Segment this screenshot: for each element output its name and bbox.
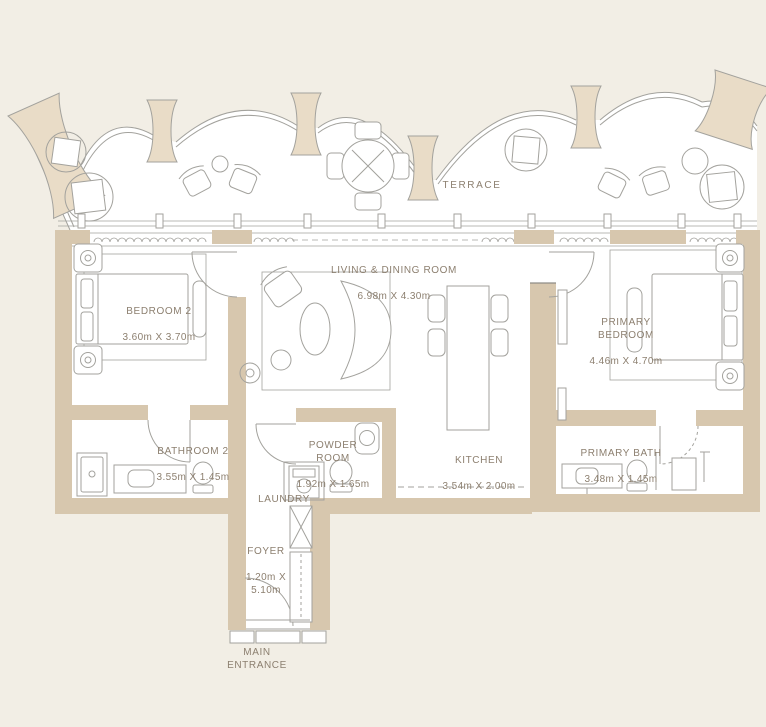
room-name: BEDROOM 2	[122, 305, 195, 318]
room-name: LAUNDRY	[258, 493, 310, 506]
foyer-closet-icon	[290, 506, 312, 622]
room-label-bathroom-2: BATHROOM 2 3.55m X 1.45m	[156, 432, 229, 497]
room-label-living-dining: LIVING & DINING ROOM 6.98m X 4.30m	[331, 251, 457, 316]
main-entrance-label: MAIN ENTRANCE	[227, 646, 287, 672]
room-name: PRIMARY BEDROOM	[589, 316, 662, 342]
room-dims: 3.55m X 1.45m	[156, 471, 229, 484]
room-name: BATHROOM 2	[156, 445, 229, 458]
room-label-primary-bath: PRIMARY BATH 3.48m X 1.45m	[580, 434, 661, 499]
room-name: POWDER ROOM	[296, 439, 369, 465]
room-label-kitchen: KITCHEN 3.54m X 2.00m	[442, 441, 515, 506]
room-dims: 6.98m X 4.30m	[331, 290, 457, 303]
room-name: KITCHEN	[442, 454, 515, 467]
room-dims: 4.46m X 4.70m	[589, 355, 662, 368]
room-label-primary-bedroom: PRIMARY BEDROOM 4.46m X 4.70m	[589, 303, 662, 381]
terrace-side-table-icon	[682, 148, 708, 174]
room-dims: 1.20m X 5.10m	[246, 571, 286, 597]
room-label-laundry: LAUNDRY	[258, 480, 310, 519]
room-name: FOYER	[246, 545, 286, 558]
room-label-foyer: FOYER 1.20m X 5.10m	[246, 532, 286, 610]
room-name: PRIMARY BATH	[580, 447, 661, 460]
terrace-side-table-icon	[212, 156, 228, 172]
room-name: LIVING & DINING ROOM	[331, 264, 457, 277]
room-dims: 3.54m X 2.00m	[442, 480, 515, 493]
room-dims: 3.60m X 3.70m	[122, 331, 195, 344]
room-label-bedroom-2: BEDROOM 2 3.60m X 3.70m	[122, 292, 195, 357]
floor-plan: TERRACE LIVING & DINING ROOM 6.98m X 4.3…	[0, 0, 766, 727]
room-dims: 3.48m X 1.45m	[580, 473, 661, 486]
terrace-label: TERRACE	[443, 179, 502, 192]
